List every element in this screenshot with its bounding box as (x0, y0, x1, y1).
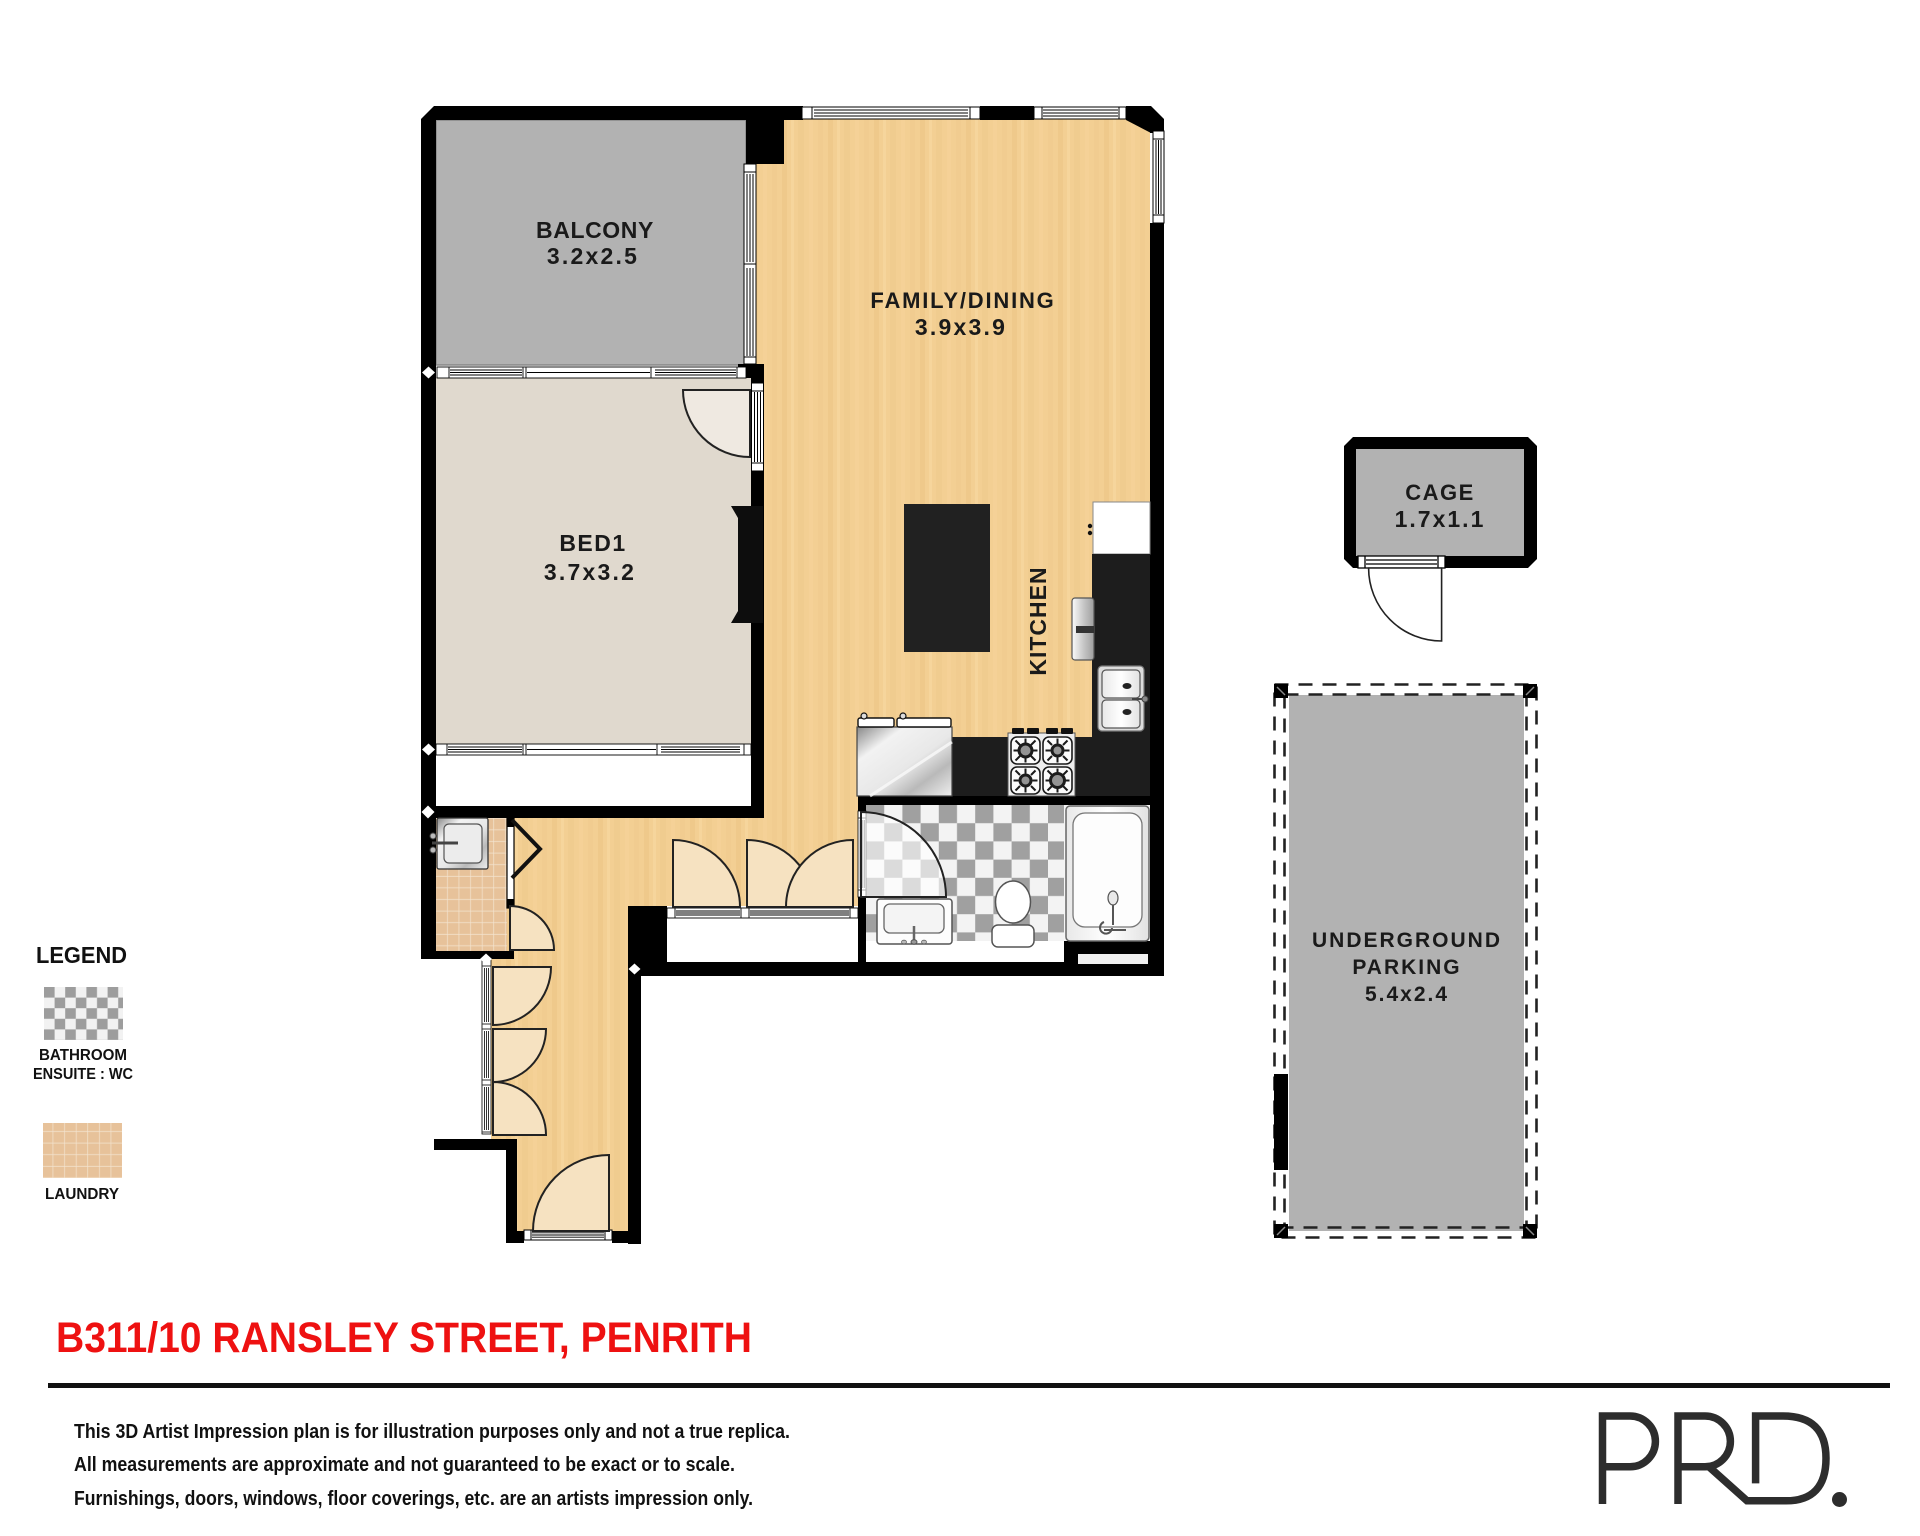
svg-text:CAGE: CAGE (1405, 480, 1475, 505)
svg-text:LAUNDRY: LAUNDRY (45, 1186, 119, 1203)
svg-text:PARKING: PARKING (1352, 956, 1461, 979)
svg-text:1.7x1.1: 1.7x1.1 (1395, 506, 1486, 532)
svg-text:BATHROOM: BATHROOM (39, 1047, 127, 1064)
svg-text:KITCHEN: KITCHEN (1025, 566, 1051, 675)
svg-text:FAMILY/DINING: FAMILY/DINING (870, 288, 1055, 313)
svg-text:3.9x3.9: 3.9x3.9 (915, 314, 1007, 340)
svg-text:This 3D Artist Impression plan: This 3D Artist Impression plan is for il… (74, 1421, 790, 1443)
svg-text:3.2x2.5: 3.2x2.5 (547, 243, 639, 269)
svg-text:LEGEND: LEGEND (36, 942, 127, 968)
svg-text:UNDERGROUND: UNDERGROUND (1312, 929, 1502, 952)
svg-text:B311/10 RANSLEY STREET, PENRIT: B311/10 RANSLEY STREET, PENRITH (56, 1314, 752, 1362)
svg-text:Furnishings, doors, windows, f: Furnishings, doors, windows, floor cover… (74, 1488, 753, 1510)
svg-text:All measurements are approxima: All measurements are approximate and not… (74, 1454, 735, 1476)
svg-text:3.7x3.2: 3.7x3.2 (544, 559, 636, 585)
svg-text:5.4x2.4: 5.4x2.4 (1365, 983, 1449, 1006)
svg-text:ENSUITE : WC: ENSUITE : WC (33, 1066, 133, 1083)
svg-text:BED1: BED1 (559, 530, 626, 556)
svg-text:BALCONY: BALCONY (536, 217, 654, 243)
